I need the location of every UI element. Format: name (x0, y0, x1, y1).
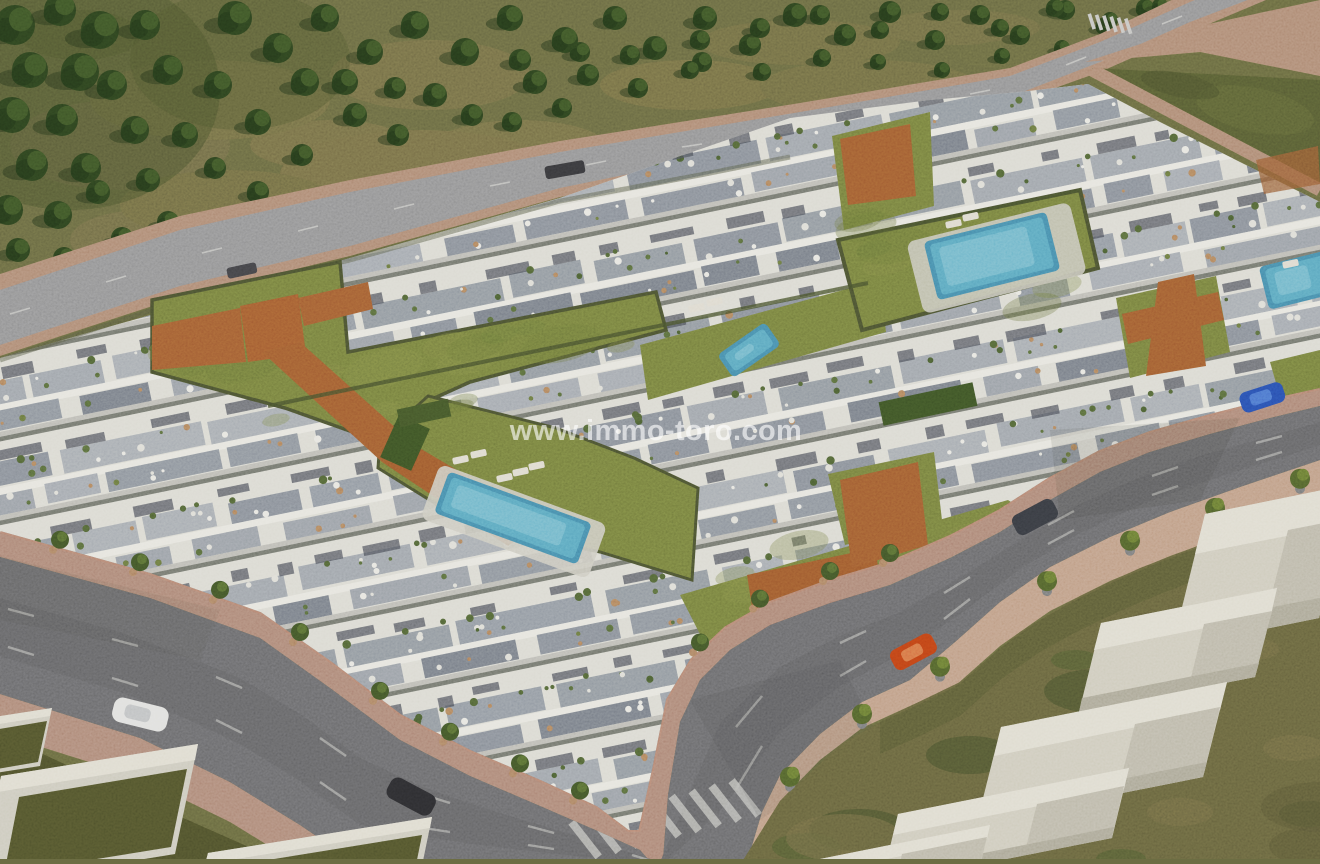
svg-text:www.immo-toro.com: www.immo-toro.com (509, 415, 803, 447)
